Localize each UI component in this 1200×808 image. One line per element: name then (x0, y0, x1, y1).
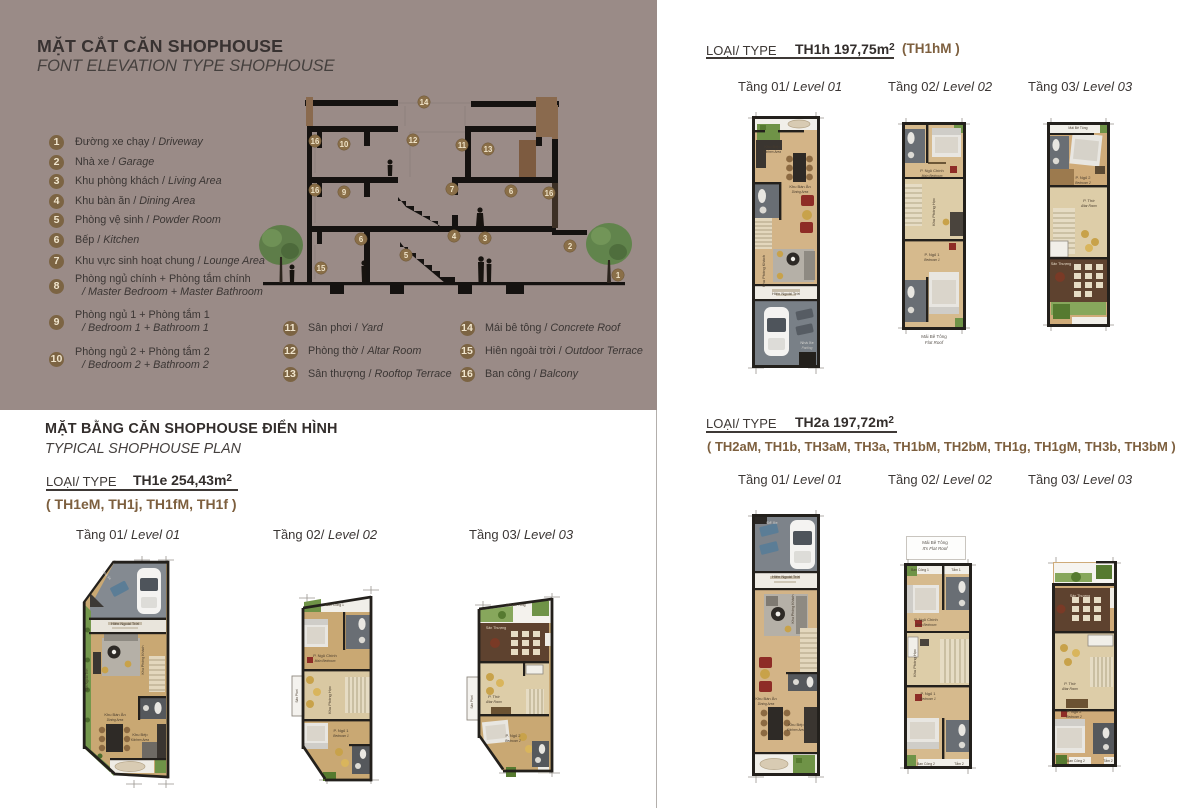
svg-text:12: 12 (409, 136, 418, 145)
svg-text:3: 3 (483, 234, 488, 243)
svg-text:P. Thờ: P. Thờ (1083, 198, 1095, 203)
svg-text:Khu Phòng Khách: Khu Phòng Khách (761, 255, 766, 287)
svg-text:Mái Bê Tông: Mái Bê Tông (1068, 126, 1087, 130)
svg-text:1: 1 (616, 271, 621, 280)
svg-text:Sân Phơi: Sân Phơi (295, 689, 299, 703)
svg-text:P. Ngủ Chính: P. Ngủ Chính (313, 653, 337, 658)
svg-text:Tắm 2: Tắm 2 (954, 761, 964, 766)
svg-text:Kitchen Area: Kitchen Area (131, 738, 149, 742)
svg-text:Parking: Parking (802, 346, 813, 350)
svg-text:P. Thờ: P. Thờ (488, 694, 500, 699)
svg-text:Hiên Ngoài Trời: Hiên Ngoài Trời (772, 574, 800, 579)
svg-text:Hiên Ngoài Trời: Hiên Ngoài Trời (111, 621, 139, 626)
svg-text:Kitchen Area: Kitchen Area (787, 728, 805, 732)
svg-text:Main Bedroom: Main Bedroom (315, 659, 336, 663)
svg-text:Sân Thượng: Sân Thượng (1051, 262, 1071, 266)
svg-text:Khu Phòng Khách: Khu Phòng Khách (791, 595, 795, 624)
svg-text:Khu Bếp: Khu Bếp (788, 722, 804, 727)
svg-text:Tắm 1: Tắm 1 (951, 567, 961, 572)
svg-text:Hiên Ngoài Trời: Hiên Ngoài Trời (772, 291, 800, 296)
svg-text:6: 6 (509, 187, 514, 196)
svg-text:Kitchen Area: Kitchen Area (763, 150, 781, 154)
svg-text:13: 13 (484, 145, 493, 154)
svg-text:Bedroom 2: Bedroom 2 (1066, 715, 1082, 719)
svg-text:Khu Bàn Ăn: Khu Bàn Ăn (104, 712, 125, 717)
svg-text:11: 11 (458, 141, 467, 150)
svg-text:Mái Bê Tông: Mái Bê Tông (506, 603, 525, 607)
svg-text:2: 2 (568, 242, 573, 251)
svg-text:P. Ngủ 1: P. Ngủ 1 (924, 252, 940, 257)
svg-text:Ban Công 1: Ban Công 1 (911, 568, 929, 572)
svg-text:Altar Room: Altar Room (1061, 687, 1078, 691)
svg-text:P. Ngủ Chính: P. Ngủ Chính (920, 168, 944, 173)
svg-text:14: 14 (420, 98, 429, 107)
svg-text:4: 4 (452, 232, 457, 241)
svg-text:7: 7 (450, 185, 454, 194)
svg-text:P. Ngủ 2: P. Ngủ 2 (1066, 709, 1082, 714)
svg-text:10: 10 (340, 140, 349, 149)
svg-text:Bedroom 2: Bedroom 2 (1075, 181, 1091, 185)
svg-text:Khu Bếp: Khu Bếp (132, 732, 148, 737)
svg-text:P. Ngủ 2: P. Ngủ 2 (1075, 175, 1091, 180)
svg-text:16: 16 (311, 186, 320, 195)
svg-text:Dining Area: Dining Area (758, 702, 775, 706)
svg-text:9: 9 (342, 188, 347, 197)
svg-text:Bedroom 2: Bedroom 2 (505, 739, 521, 743)
svg-text:Ban Công 2: Ban Công 2 (1067, 759, 1085, 763)
svg-text:Bedroom 1: Bedroom 1 (924, 258, 940, 262)
svg-text:6: 6 (359, 235, 364, 244)
svg-text:P. Thờ: P. Thờ (1064, 681, 1076, 686)
svg-text:Khu Phòng Học: Khu Phòng Học (931, 198, 936, 226)
svg-text:Nhà Xe: Nhà Xe (800, 340, 814, 345)
svg-text:P. Ngủ 1: P. Ngủ 1 (333, 728, 349, 733)
svg-text:P. Ngủ Chính: P. Ngủ Chính (914, 617, 938, 622)
svg-text:Bedroom 1: Bedroom 1 (920, 697, 936, 701)
svg-text:Altar Room: Altar Room (1080, 204, 1097, 208)
svg-text:Ban Công 2: Ban Công 2 (917, 762, 935, 766)
svg-text:Main Bedroom: Main Bedroom (922, 174, 943, 178)
svg-text:Dining Area: Dining Area (107, 718, 124, 722)
svg-text:Bedroom 1: Bedroom 1 (333, 734, 349, 738)
svg-text:Tắm 2: Tắm 2 (1103, 758, 1113, 763)
svg-text:Altar Room: Altar Room (485, 700, 502, 704)
svg-text:Khu Phòng Học: Khu Phòng Học (327, 686, 332, 714)
svg-text:Sân Thượng: Sân Thượng (1070, 594, 1090, 598)
svg-text:15: 15 (317, 264, 326, 273)
svg-text:Main Bedroom: Main Bedroom (916, 623, 937, 627)
svg-text:Khu Bàn Ăn: Khu Bàn Ăn (789, 184, 810, 189)
svg-text:Dining Area: Dining Area (792, 190, 809, 194)
svg-text:Khu Bếp: Khu Bếp (764, 144, 780, 149)
svg-text:Sân Phơi: Sân Phơi (470, 695, 474, 709)
svg-text:16: 16 (545, 189, 554, 198)
svg-text:16: 16 (311, 137, 320, 146)
svg-text:P. Ngủ 2: P. Ngủ 2 (505, 733, 521, 738)
svg-text:Để Xe: Để Xe (766, 520, 778, 525)
svg-text:Sân Thượng: Sân Thượng (486, 626, 506, 630)
svg-text:Khu Phòng Học: Khu Phòng Học (912, 649, 917, 677)
svg-text:5: 5 (404, 251, 409, 260)
svg-text:Ban Công 1: Ban Công 1 (326, 603, 344, 607)
svg-text:Sân Ngoài Trời: Sân Ngoài Trời (85, 668, 89, 691)
svg-text:Khu Bàn Ăn: Khu Bàn Ăn (755, 696, 776, 701)
svg-text:P. Ngủ 1: P. Ngủ 1 (920, 691, 936, 696)
svg-text:Khu Phòng Khách: Khu Phòng Khách (141, 646, 145, 675)
